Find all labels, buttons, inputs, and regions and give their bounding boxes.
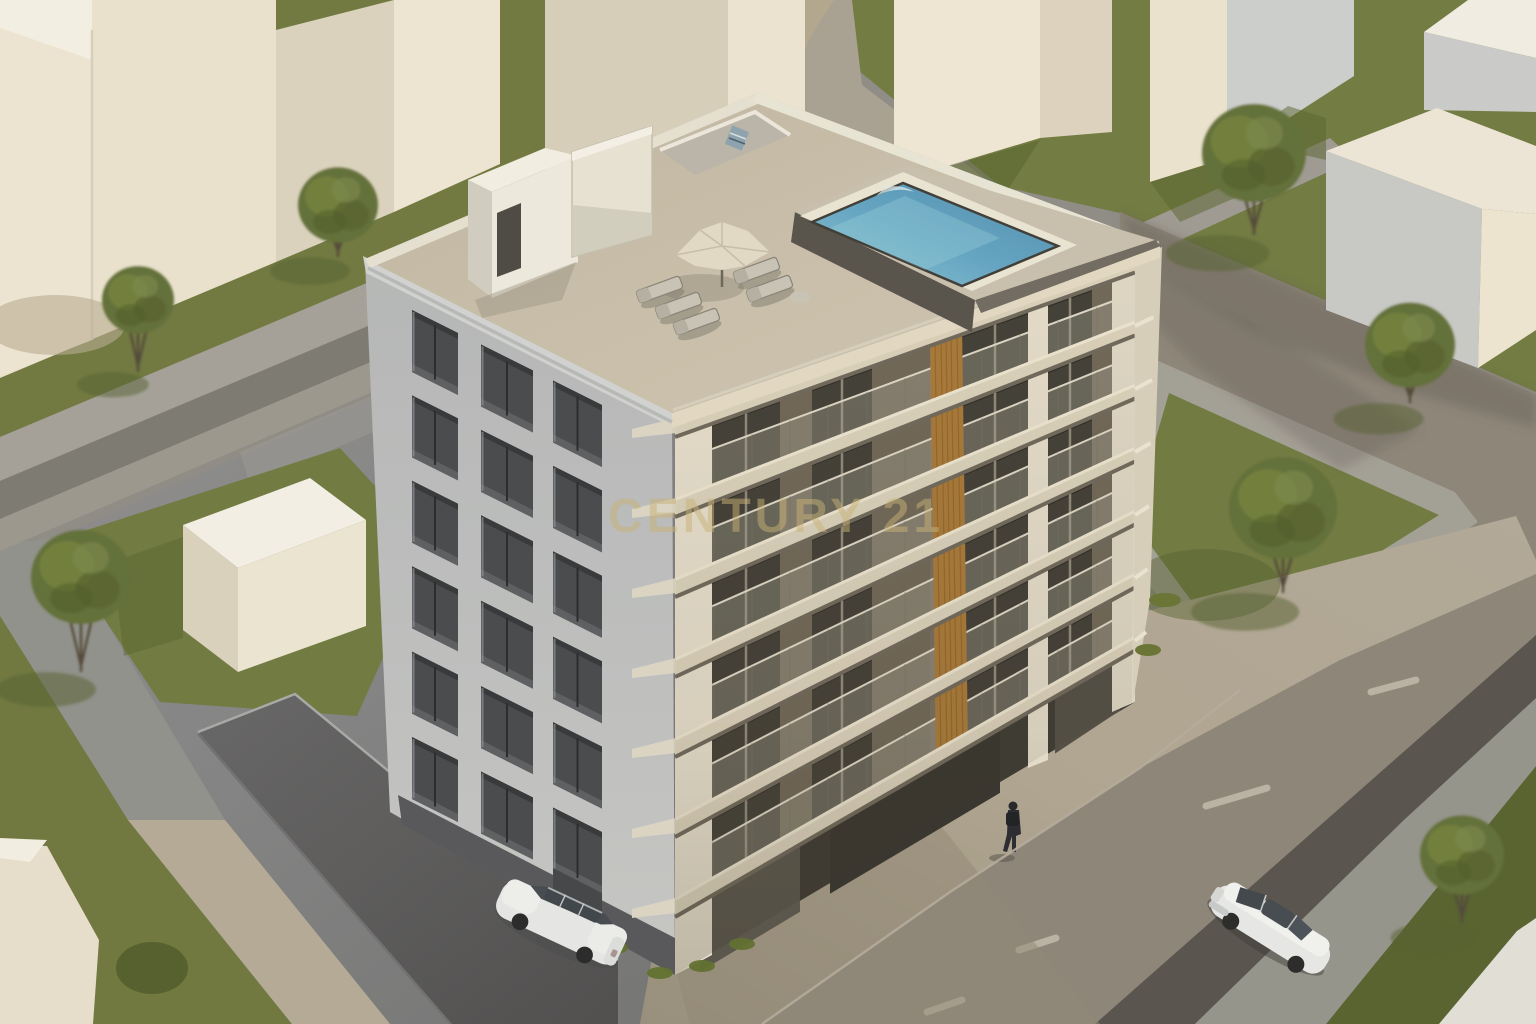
svg-text:CENTURY 21: CENTURY 21 [608, 490, 944, 543]
